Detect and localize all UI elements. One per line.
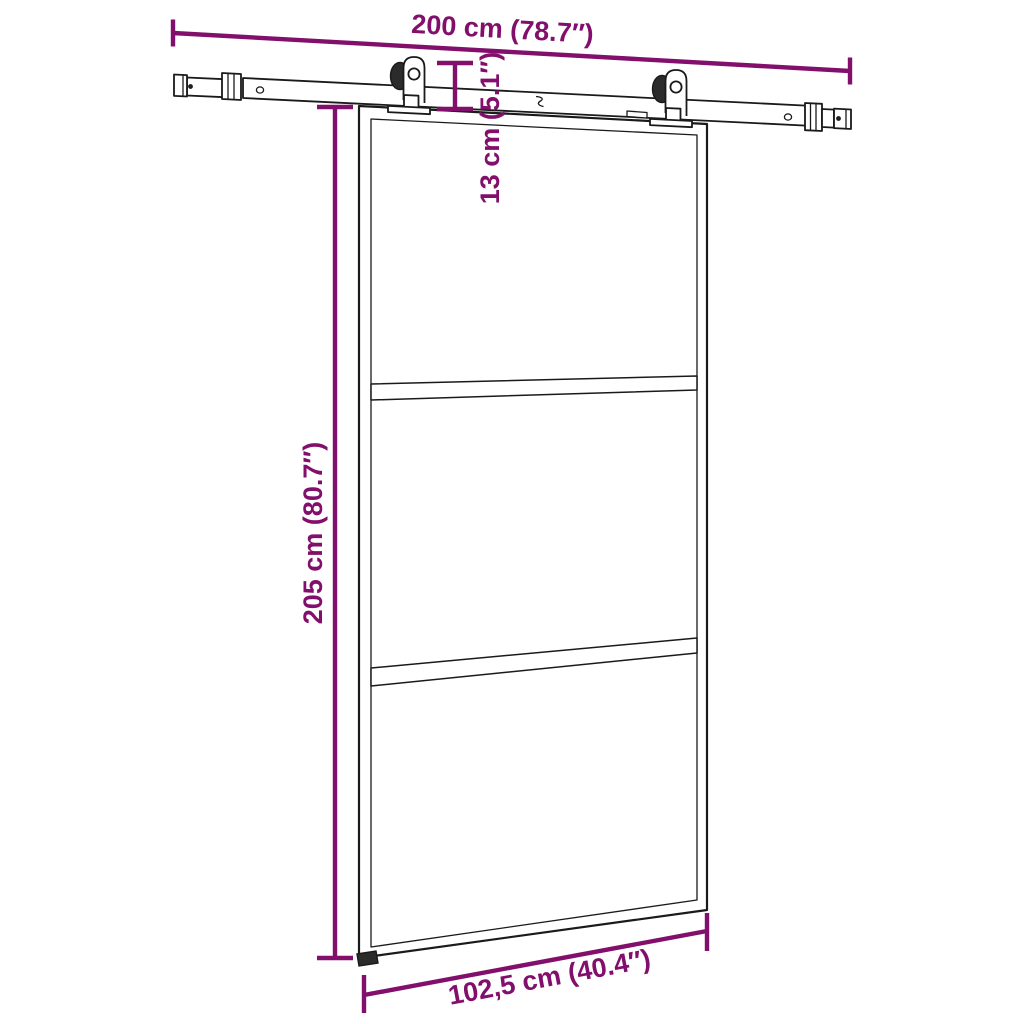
hanger-foot [388,106,430,114]
dimension-label-door-width: 102,5 cm (40.4″) [446,944,653,1011]
rail-right-bolt-dot [837,117,840,120]
dimension-door-height: 205 cm (80.7″) [298,107,353,958]
rail-left-end-cap [174,75,187,97]
hanger-bolt-hole [670,81,681,92]
door-panel [357,106,707,966]
floor-guide [357,951,378,966]
rail-right-shaft [822,109,834,128]
hanger-bolt-hole [408,68,419,79]
dimension-rail-width: 200 cm (78.7″) [173,9,850,85]
product-dimension-diagram: 200 cm (78.7″) 13 cm (5.1″) 205 cm (80.7… [0,0,1024,1024]
dimension-label-door-height: 205 cm (80.7″) [298,442,328,625]
door-outer-frame [359,106,707,958]
rail-right-bracket [805,103,822,131]
dimension-label-rail-width: 200 cm (78.7″) [411,9,595,49]
dimension-label-rail-to-door: 13 cm (5.1″) [475,52,505,205]
door-top-tab [627,111,647,118]
rail-left-bracket [222,73,241,100]
rail-left-bolt-dot [189,85,192,88]
diagram-canvas: 200 cm (78.7″) 13 cm (5.1″) 205 cm (80.7… [0,0,1024,1024]
hanger-foot [650,119,692,127]
